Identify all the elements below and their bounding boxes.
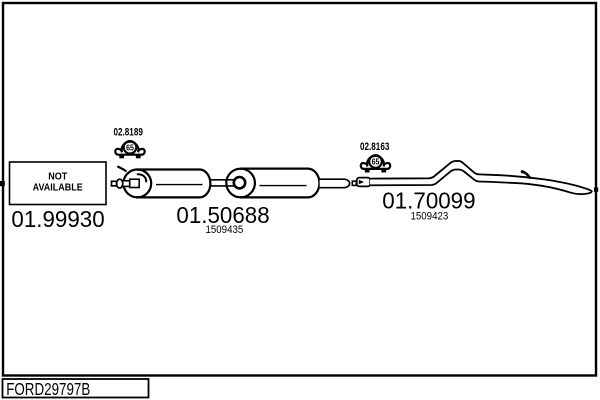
svg-text:02.8189: 02.8189 [114,126,144,139]
svg-text:65: 65 [372,157,380,167]
svg-text:02.8163: 02.8163 [360,141,390,154]
svg-text:AVAILABLE: AVAILABLE [33,182,83,194]
svg-text:65: 65 [126,143,134,153]
svg-text:1509435: 1509435 [206,224,244,237]
svg-text:1509423: 1509423 [411,210,449,223]
svg-text:01.99930: 01.99930 [11,205,104,232]
svg-text:FORD29797B: FORD29797B [6,381,90,400]
